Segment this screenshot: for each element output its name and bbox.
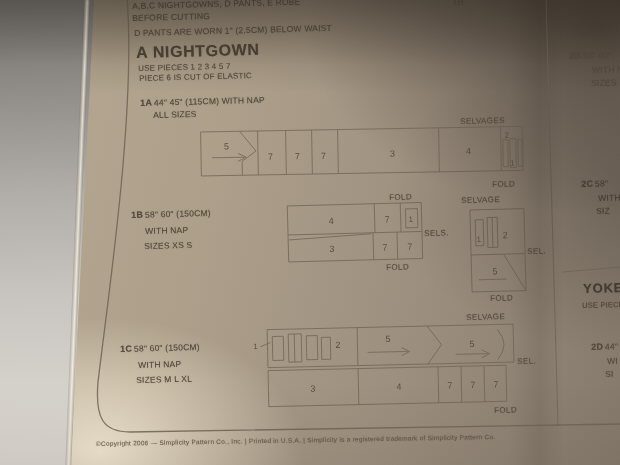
piece-number: 7	[385, 214, 390, 224]
fold-top-label-1b: FOLD	[389, 192, 412, 202]
fold-label-1b-side: FOLD	[490, 293, 513, 303]
fold-label-1a: FOLD	[492, 179, 515, 189]
fabric-outline-1a	[201, 126, 524, 176]
piece-divider	[461, 366, 462, 402]
small-piece-outline	[321, 337, 330, 359]
piece-number: 1	[510, 159, 514, 168]
top-note-corner-fragment: TH	[452, 0, 464, 7]
layout-2d-nap: WI	[607, 356, 618, 366]
piece-number: 7	[382, 242, 387, 252]
piece-divider	[400, 203, 401, 232]
small-piece-detail	[294, 334, 295, 362]
piece-number: 5	[492, 266, 497, 276]
yoke-section-rule	[562, 267, 620, 272]
layout-2c-sizes: SIZ	[596, 206, 610, 216]
piece-number: 4	[329, 216, 334, 226]
cutting-diagram-1c: 1 2 5 5 3 4 7 7 7	[251, 322, 519, 410]
layout-1c-fabric: 58" 60" (150CM)	[134, 342, 200, 354]
fold-label-1c: FOLD	[494, 405, 517, 415]
piece-number: 7	[470, 380, 475, 390]
piece-number: 7	[493, 379, 498, 389]
piece-divider	[357, 328, 358, 366]
piece-divider	[286, 131, 287, 175]
layout-2b-fabric: 58" 60"	[583, 50, 612, 61]
layout-1b-id: 1B	[131, 210, 143, 220]
layout-1a-id: 1A	[140, 98, 152, 108]
piece-number: 4	[466, 146, 471, 156]
piece-number: 5	[469, 339, 474, 349]
layout-1b-caption: 1B58" 60" (150CM)	[131, 208, 211, 220]
small-piece-outline	[503, 140, 508, 167]
sel-label-1c: SEL.	[517, 357, 536, 366]
piece-number: 5	[385, 334, 390, 344]
row-divider	[288, 231, 422, 235]
piece-number: 1	[409, 215, 413, 224]
sels-label-1b: SELS.	[424, 228, 449, 238]
piece-number: 7	[295, 151, 300, 161]
layout-2b-id: 2B	[569, 51, 581, 61]
section-title-a-nightgown: A NIGHTGOWN	[136, 41, 260, 62]
piece-number: 3	[329, 244, 334, 254]
piece-curved-edge	[497, 329, 504, 359]
piece-divider	[338, 130, 339, 174]
yoke-section-title: YOKE	[583, 280, 620, 296]
grainline-arrow	[456, 354, 488, 355]
cutting-diagram-1a: 5 7 7 7 3 4 2 1	[200, 125, 525, 177]
yoke-use-pieces: USE PIECES	[582, 300, 620, 310]
grainline	[479, 279, 507, 280]
cutting-diagram-1b-main: 4 7 1 3 7 7	[286, 201, 423, 263]
piece-number: 2	[505, 131, 509, 140]
layout-2c-nap: WITH	[598, 192, 620, 203]
piece-divider	[484, 366, 485, 402]
layout-2d-id: 2D	[591, 342, 603, 352]
piece-divider	[374, 204, 375, 233]
layout-1c-sizes: SIZES M L XL	[136, 374, 192, 385]
piece-divider	[438, 367, 439, 403]
selvage-label-1c: SELVAGE	[466, 312, 505, 322]
small-piece-outline	[272, 336, 284, 360]
piece-5-edge	[240, 131, 257, 175]
piece-number: 7	[407, 242, 412, 252]
piece-divider	[397, 232, 398, 259]
selvages-label-1a: SELVAGES	[460, 116, 505, 126]
layout-1c-id: 1C	[120, 344, 132, 354]
grainline-arrow	[368, 351, 408, 352]
layout-1b-sizes: SIZES XS S	[144, 240, 193, 251]
top-note-line-2: BEFORE CUTTING	[132, 11, 210, 23]
piece-divider	[312, 130, 313, 174]
layout-1c-caption: 1C58" 60" (150CM)	[120, 342, 200, 354]
piece-divider	[501, 127, 502, 171]
layout-2b-sizes: SIZES	[591, 77, 617, 88]
layout-2d-caption: 2D44"	[591, 341, 618, 352]
piece-divider	[439, 128, 440, 172]
small-piece-outline	[306, 336, 318, 360]
small-piece-detail	[492, 217, 493, 247]
selvage-label-1b-side: SELVAGE	[461, 195, 500, 205]
column-divider-line	[546, 0, 558, 426]
sel-label-1b-side: SEL.	[527, 247, 546, 256]
layout-2c-caption: 2C58"	[581, 178, 608, 189]
layout-1c-nap: WITH NAP	[138, 359, 181, 370]
layout-1a-sizes: ALL SIZES	[153, 109, 197, 120]
piece-divider	[373, 233, 374, 260]
piece-number: 1	[477, 235, 481, 244]
layout-1b-nap: WITH NAP	[145, 225, 188, 236]
layout-2c-fabric: 58"	[595, 178, 608, 188]
layout-2d-sizes: SI	[605, 369, 614, 379]
piece-number: 2	[502, 230, 507, 240]
layout-2b-caption: 2B58" 60"	[569, 50, 612, 61]
piece-number: 5	[224, 141, 229, 151]
layout-2b-nap: WITH NAP	[592, 64, 620, 75]
small-piece-outline	[518, 139, 522, 166]
cutting-diagram-1b-side: 1 2 5	[469, 208, 527, 293]
layout-2c-id: 2C	[581, 179, 593, 189]
piece-edge	[504, 255, 526, 292]
piece-number: 3	[390, 149, 395, 159]
grainline-arrow	[212, 157, 244, 158]
row-divider	[471, 254, 525, 255]
piece-number: 3	[310, 384, 315, 394]
fabric-outline-1c-top	[267, 324, 514, 368]
layout-1b-fabric: 58" 60" (150CM)	[145, 208, 211, 220]
piece-divider	[258, 131, 259, 175]
piece-divider	[358, 369, 359, 405]
piece-chevron-edge	[427, 326, 442, 364]
printed-content: A,B,C NIGHTGOWNS, D PANTS, E ROBE TH BEF…	[0, 0, 620, 465]
piece-number: 7	[268, 152, 273, 162]
piece-number: 7	[447, 380, 452, 390]
fold-bottom-label-1b: FOLD	[386, 262, 409, 272]
piece-number: 1	[253, 342, 257, 351]
piece-number: 7	[321, 151, 326, 161]
piece-number: 4	[396, 382, 401, 392]
piece-number: 2	[335, 340, 340, 350]
label-leader-line	[260, 343, 270, 347]
layout-2d-fabric: 44"	[605, 341, 618, 351]
